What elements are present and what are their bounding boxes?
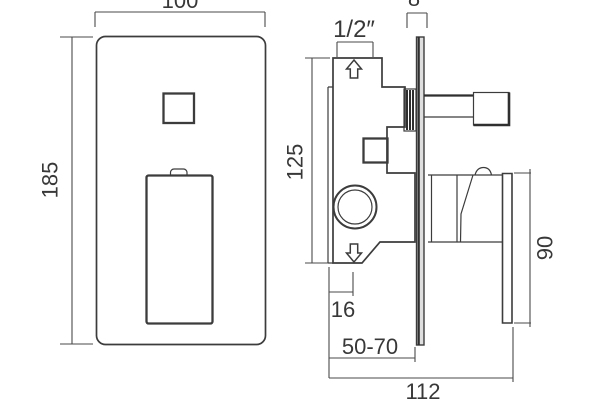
body-height-label: 125 xyxy=(283,144,308,181)
plate-height-dimension: 185 xyxy=(38,37,94,344)
recess-depth-dimension: 50-70 xyxy=(329,334,415,362)
technical-drawing-page: 100 185 1/2″ xyxy=(0,0,600,400)
body-offset-label: 16 xyxy=(331,297,355,322)
plate-width-label: 100 xyxy=(162,0,199,13)
lever-handle-side xyxy=(428,168,512,324)
handle-height-dimension: 90 xyxy=(514,169,558,327)
shower-valve-drawing: 100 185 1/2″ xyxy=(0,0,600,400)
body-height-dimension: 125 xyxy=(283,58,331,263)
wall-plate-front xyxy=(97,37,266,345)
plate-width-dimension: 100 xyxy=(95,0,265,27)
front-view: 100 185 xyxy=(38,0,266,345)
valve-body-outline xyxy=(333,58,415,263)
side-view: 1/2″ 8 125 xyxy=(283,0,558,400)
body-offset-dimension: 16 xyxy=(329,267,355,378)
handle-height-label: 90 xyxy=(533,236,558,260)
wall-plate-side xyxy=(417,37,425,345)
inlet-size-dimension: 1/2″ xyxy=(333,16,375,57)
inlet-size-label: 1/2″ xyxy=(333,16,375,43)
handle-bump-detail xyxy=(475,168,492,176)
handle-neck xyxy=(461,175,474,242)
overall-depth-label: 112 xyxy=(405,379,440,400)
plate-height-label: 185 xyxy=(38,162,63,199)
recess-depth-label: 50-70 xyxy=(342,334,398,359)
handle-blade-side xyxy=(503,174,513,324)
plate-thickness-dimension: 8 xyxy=(407,0,427,28)
plate-thickness-label: 8 xyxy=(408,0,420,11)
diverter-button-side xyxy=(424,93,509,126)
inlet-boss xyxy=(334,186,377,229)
